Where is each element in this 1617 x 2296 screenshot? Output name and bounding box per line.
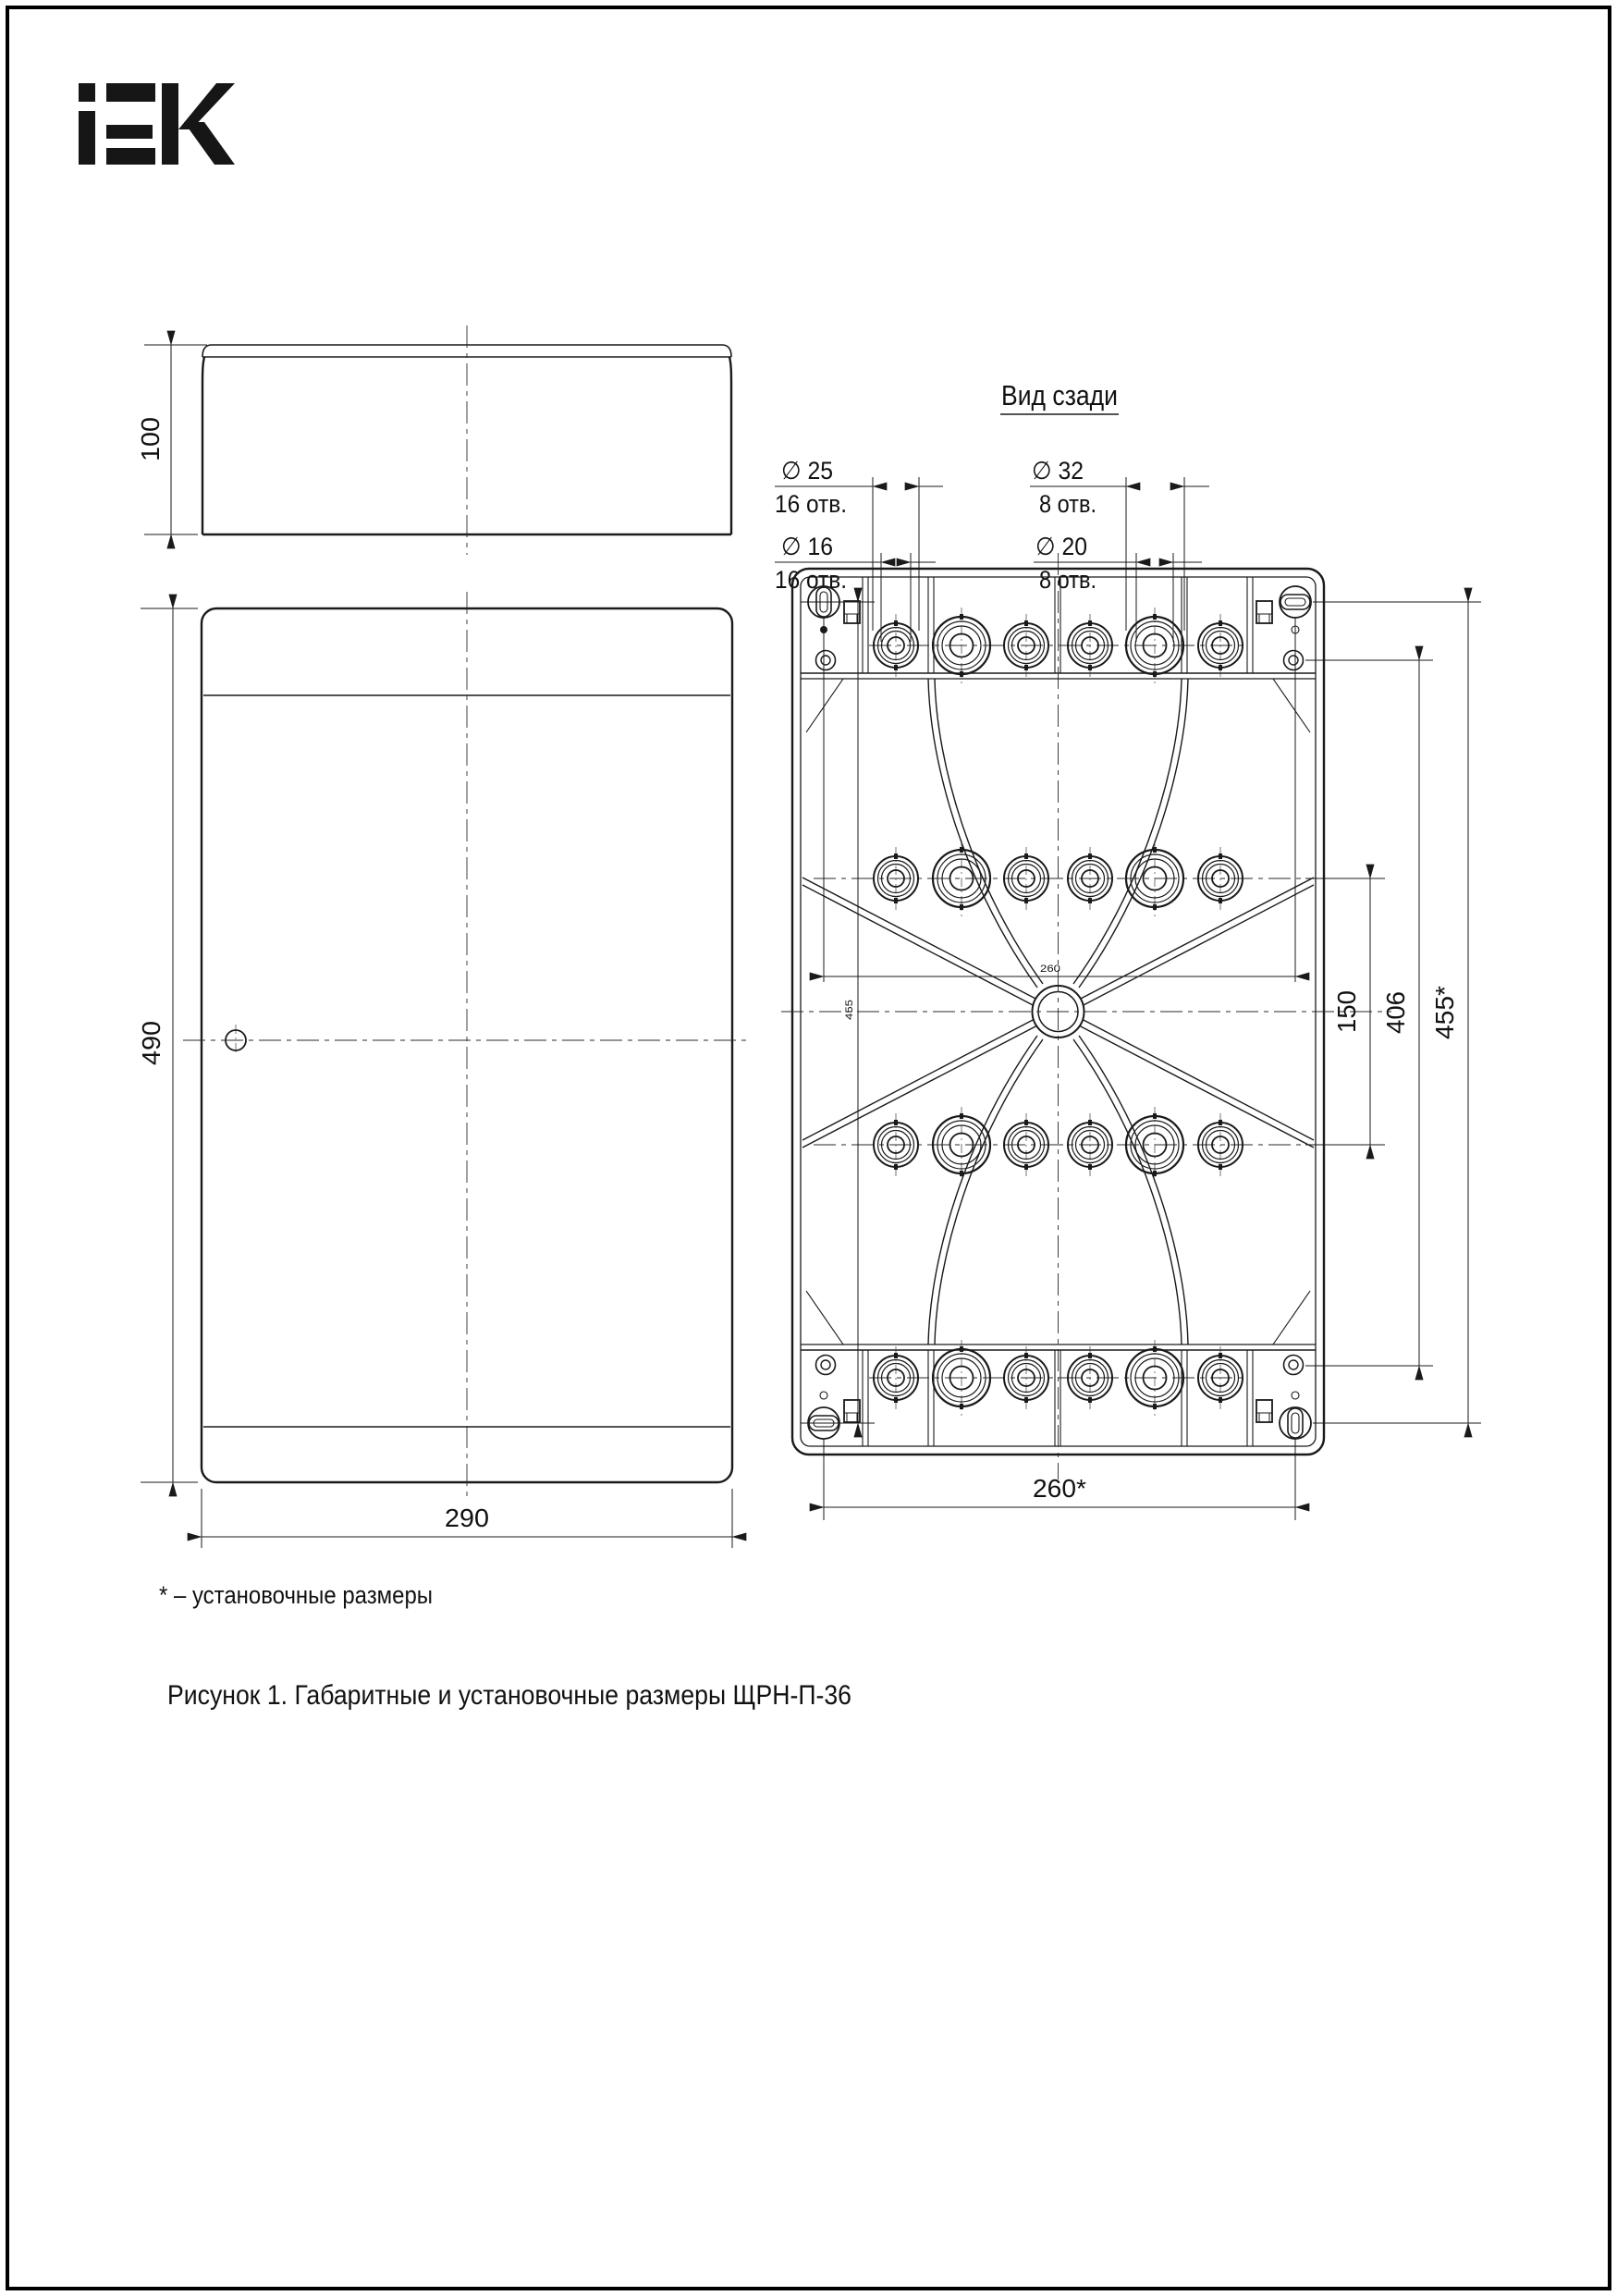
mount-bottom-left (801, 1356, 875, 1440)
side-left-edge (202, 357, 204, 534)
technical-drawing: IEK 100 490 (0, 0, 1617, 2296)
callout-d20-label: ∅ 20 (1035, 533, 1087, 560)
side-right-edge (729, 357, 731, 534)
callout-d25-holes: 16 отв. (775, 490, 847, 518)
dim-label-depth: 100 (136, 417, 165, 461)
pilot-hole (820, 1392, 827, 1399)
rear-view: Вид сзади ∅ 25 16 отв. ∅ 16 16 отв. ∅ 32… (775, 379, 1481, 1520)
dim-label-mount-width: 260* (1033, 1474, 1086, 1503)
right-dimensions: 150 406 455* (1305, 602, 1481, 1423)
hole-callouts: ∅ 25 16 отв. ∅ 16 16 отв. ∅ 32 8 отв. ∅ … (775, 457, 1209, 642)
logo-e-bar (106, 83, 155, 102)
logo-i-stem (79, 111, 95, 165)
dim-label-mount-height: 455* (1430, 986, 1459, 1039)
page-border (7, 7, 1610, 2289)
mount-bottom-right (1280, 1356, 1311, 1440)
rear-view-title: Вид сзади (1001, 379, 1118, 411)
drawing-page: IEK 100 490 (0, 0, 1617, 2296)
dim-label-height: 490 (137, 1021, 165, 1065)
logo-k-stem (162, 83, 178, 165)
figure-caption: Рисунок 1. Габаритные и установочные раз… (167, 1680, 851, 1711)
dim-label-holes-span: 406 (1381, 991, 1410, 1034)
dim-label-width: 290 (445, 1504, 489, 1532)
callout-d25-label: ∅ 25 (781, 457, 833, 485)
callout-d16-label: ∅ 16 (781, 533, 833, 560)
callout-d16-holes: 16 отв. (775, 566, 847, 594)
logo-e-bar (106, 148, 155, 165)
logo-i-dot (79, 83, 95, 102)
logo-e-bar (106, 125, 153, 139)
bottom-dimension: 260* (824, 1439, 1295, 1520)
dim-label-inner-width: 260 (1040, 964, 1060, 975)
callout-d32-label: ∅ 32 (1032, 457, 1084, 485)
side-view: 100 (136, 325, 731, 555)
callout-d32-holes: 8 отв. (1039, 490, 1096, 518)
logo-k-lower (184, 122, 235, 165)
iek-logo: IEK (79, 83, 235, 165)
front-view: 490 290 (137, 592, 749, 1548)
din-clip (844, 601, 860, 623)
pilot-hole (1292, 1392, 1299, 1399)
dim-label-rows-gap: 150 (1332, 990, 1361, 1033)
mount-top-left (801, 586, 875, 670)
din-clip (1256, 1400, 1272, 1422)
dim-label-inner-height: 455 (844, 1000, 855, 1020)
din-clip (1256, 601, 1272, 623)
callout-d20-holes: 8 отв. (1039, 566, 1096, 594)
din-clip (844, 1400, 860, 1422)
footnote: * – установочные размеры (159, 1581, 433, 1609)
